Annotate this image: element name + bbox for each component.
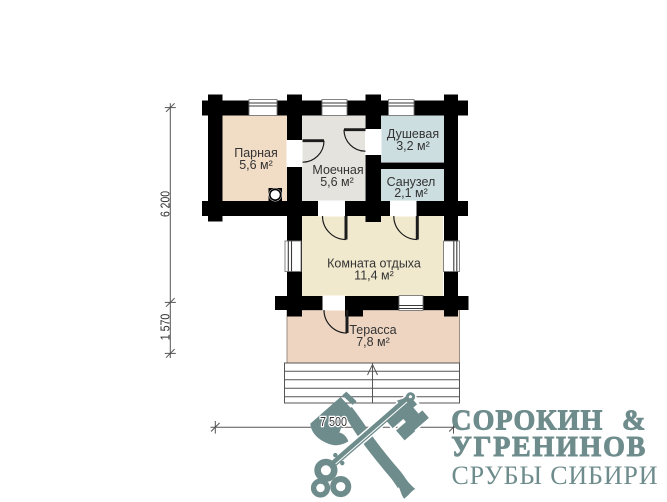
svg-text:11,4 м²: 11,4 м² [354, 269, 394, 283]
svg-text:3,2 м²: 3,2 м² [396, 139, 430, 153]
svg-text:СРУБЫ СИБИРИ: СРУБЫ СИБИРИ [452, 461, 658, 490]
svg-text:1 570: 1 570 [158, 314, 172, 341]
svg-text:УГРЕНИНОВ: УГРЕНИНОВ [451, 432, 645, 463]
svg-text:5,6 м²: 5,6 м² [239, 158, 273, 172]
svg-text:6 200: 6 200 [158, 191, 172, 217]
svg-text:5,6 м²: 5,6 м² [320, 175, 354, 189]
svg-text:7 500: 7 500 [320, 415, 347, 429]
svg-text:2,1 м²: 2,1 м² [394, 186, 428, 200]
svg-text:7,8 м²: 7,8 м² [356, 335, 390, 349]
